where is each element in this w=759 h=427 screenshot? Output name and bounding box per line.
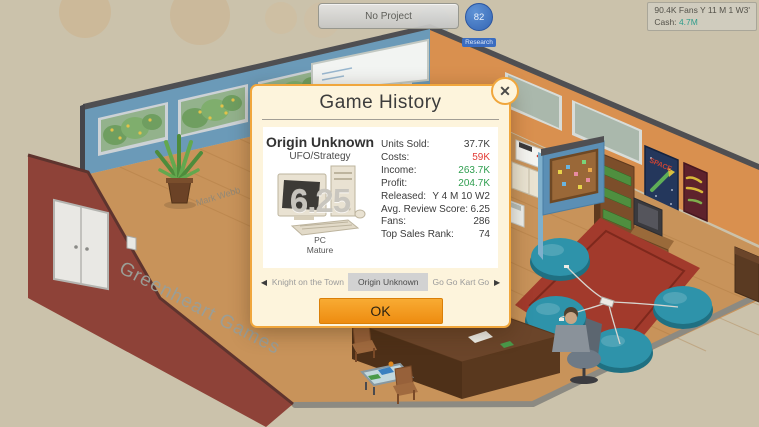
stat-label: Avg. Review Score:: [381, 204, 468, 217]
prev-game-arrow[interactable]: ◀: [260, 278, 268, 287]
game-history-dialog: ✕ Game History Origin Unknown UFO/Strate…: [250, 84, 511, 328]
nav-item-knight-on-the-town[interactable]: Knight on the Town: [268, 274, 348, 290]
close-button[interactable]: ✕: [491, 77, 519, 105]
game-name: Origin Unknown: [263, 134, 377, 150]
stat-label: Released:: [381, 191, 426, 204]
stat-row-income: Income: 263.7K: [381, 165, 490, 178]
stat-value: 6.25: [471, 204, 490, 217]
right-edge-furniture: [735, 247, 759, 302]
nav-item-origin-unknown[interactable]: Origin Unknown: [348, 273, 428, 291]
research-label: Research: [462, 38, 496, 47]
rating-label: Mature: [263, 245, 377, 255]
fans-date-line: 90.4K Fans Y 11 M 1 W3': [654, 5, 750, 17]
hud-stats-box: 90.4K Fans Y 11 M 1 W3' Cash: 4.7M: [647, 2, 757, 31]
title-divider: [262, 119, 499, 120]
stat-label: Costs:: [381, 152, 409, 165]
stat-value: 204.7K: [458, 178, 490, 191]
stat-row-avg-review-score: Avg. Review Score: 6.25: [381, 204, 490, 217]
game-dev-tycoon-screen: SPACE Mark Webb: [0, 0, 759, 427]
retro-pc-art: [274, 164, 366, 238]
cash-label: Cash:: [654, 17, 676, 27]
stat-value: 37.7K: [464, 139, 490, 152]
game-detail-panel: Origin Unknown UFO/Strategy: [263, 127, 498, 268]
stat-value: 286: [473, 216, 490, 229]
research-badge[interactable]: 82 Research: [462, 3, 496, 49]
stat-value: Y 4 M 10 W2: [432, 191, 490, 204]
pc-platform-icon: 6.25: [274, 164, 366, 238]
stat-label: Profit:: [381, 178, 407, 191]
stat-label: Units Sold:: [381, 139, 429, 152]
cash-line: Cash: 4.7M: [654, 17, 750, 29]
stat-row-released: Released: Y 4 M 10 W2: [381, 191, 490, 204]
stat-row-fans: Fans: 286: [381, 216, 490, 229]
wall-panel-icon: [127, 236, 136, 250]
office-door: [54, 200, 108, 289]
stat-label: Fans:: [381, 216, 406, 229]
no-project-bar: No Project: [318, 3, 459, 29]
game-history-nav: ◀ Knight on the Town Origin Unknown Go G…: [260, 273, 501, 291]
cash-value: 4.7M: [679, 17, 698, 27]
stat-label: Income:: [381, 165, 417, 178]
stat-value: 59K: [472, 152, 490, 165]
game-stats-list: Units Sold: 37.7K Costs: 59K Income: 263…: [377, 127, 498, 268]
close-icon: ✕: [499, 84, 511, 98]
game-genre: UFO/Strategy: [263, 151, 377, 162]
no-project-label: No Project: [365, 11, 412, 22]
stat-label: Top Sales Rank:: [381, 229, 454, 242]
research-points-bubble[interactable]: 82: [465, 3, 493, 31]
next-game-arrow[interactable]: ▶: [493, 278, 501, 287]
poster-monsters: [684, 163, 707, 221]
stat-value: 74: [479, 229, 490, 242]
game-summary: Origin Unknown UFO/Strategy: [263, 127, 377, 268]
corkboard: [551, 150, 597, 202]
nav-item-go-go-kart-go[interactable]: Go Go Kart Go: [428, 274, 493, 290]
stat-row-costs: Costs: 59K: [381, 152, 490, 165]
stat-row-top-sales-rank: Top Sales Rank: 74: [381, 229, 490, 242]
stat-value: 263.7K: [458, 165, 490, 178]
ok-button[interactable]: OK: [319, 298, 443, 324]
stat-row-units-sold: Units Sold: 37.7K: [381, 139, 490, 152]
dialog-title: Game History: [252, 92, 509, 114]
stat-row-profit: Profit: 204.7K: [381, 178, 490, 191]
nav-items: Knight on the Town Origin Unknown Go Go …: [268, 273, 493, 291]
